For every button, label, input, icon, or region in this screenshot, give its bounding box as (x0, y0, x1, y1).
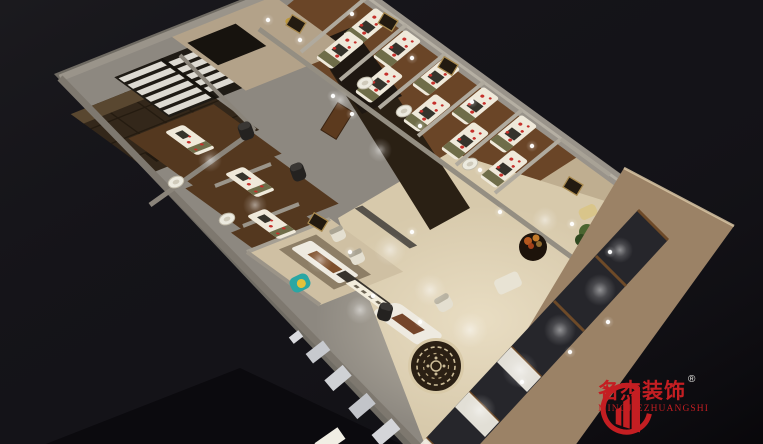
logo: 名杰装饰® MINGJIEZHUANGSHI (598, 381, 763, 415)
medallion-floor-rug (408, 338, 464, 394)
floorplan-render (0, 0, 763, 444)
logo-text-cn: 名杰装饰 (598, 379, 686, 403)
flower-table (519, 233, 547, 261)
logo-registered-mark: ® (688, 374, 695, 385)
screenshot-root: 名杰装饰® MINGJIEZHUANGSHI (0, 0, 763, 444)
